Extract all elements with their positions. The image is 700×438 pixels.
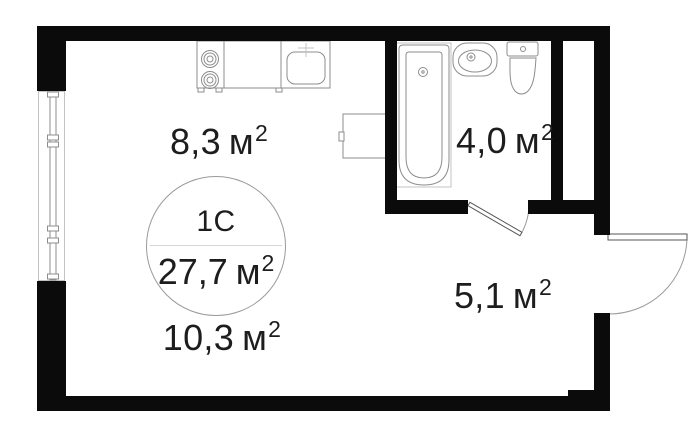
area-value: 27,7 [158,251,228,292]
wall-bathroom-bottom-right [528,200,610,214]
plan-canvas [0,0,700,438]
toilet [507,42,538,94]
area-value: 4,0 [456,120,507,161]
window-frame [50,92,56,280]
wall-bathroom-left [385,41,397,214]
apartment-stamp: 1С 27,7м2 [146,176,286,316]
bathtub [396,43,451,187]
area-value: 10,3 [163,317,234,358]
area-unit: м [236,251,261,292]
wall-left-upper [37,26,66,91]
area-value: 8,3 [170,121,221,162]
wall-bathroom-bottom-left [385,200,468,214]
entrance-door-leaf [608,234,687,240]
area-sup: 2 [255,120,268,146]
bathroom-door-leaf [468,202,522,235]
area-unit: м [229,121,254,162]
area-unit: м [242,317,267,358]
bathtub-faucet-icon [419,68,428,77]
entrance-door [608,234,687,314]
entrance-door-arc [609,240,687,314]
bathroom-door [468,202,529,235]
room-area-label-hallway: 5,1м2 [454,276,552,320]
room-area-label-bathroom: 4,0м2 [456,121,554,165]
wall-bottom [37,396,610,411]
wall-right-lower [594,313,610,411]
washbasin [453,43,497,76]
appliance-box [339,114,387,158]
bathroom-door-arc [521,204,529,234]
wall-bottom-step [568,390,594,396]
stamp-divider [150,245,282,246]
area-sup: 2 [268,316,281,342]
room-area-label-living: 10,3м2 [163,318,281,362]
area-sup: 2 [539,274,552,300]
area-value: 5,1 [454,275,505,316]
area-unit: м [515,120,540,161]
area-sup: 2 [262,250,275,276]
room-area-label-kitchen: 8,3м2 [170,122,268,166]
wall-top [37,26,610,41]
apartment-total-area: 27,7м2 [158,254,275,294]
floor-plan: 8,3м2 4,0м2 5,1м2 10,3м2 1С 27,7м2 [0,0,700,438]
area-sup: 2 [541,119,554,145]
wall-left-lower [37,281,66,411]
area-unit: м [513,275,538,316]
window [39,91,65,281]
apartment-type: 1С [196,207,235,237]
